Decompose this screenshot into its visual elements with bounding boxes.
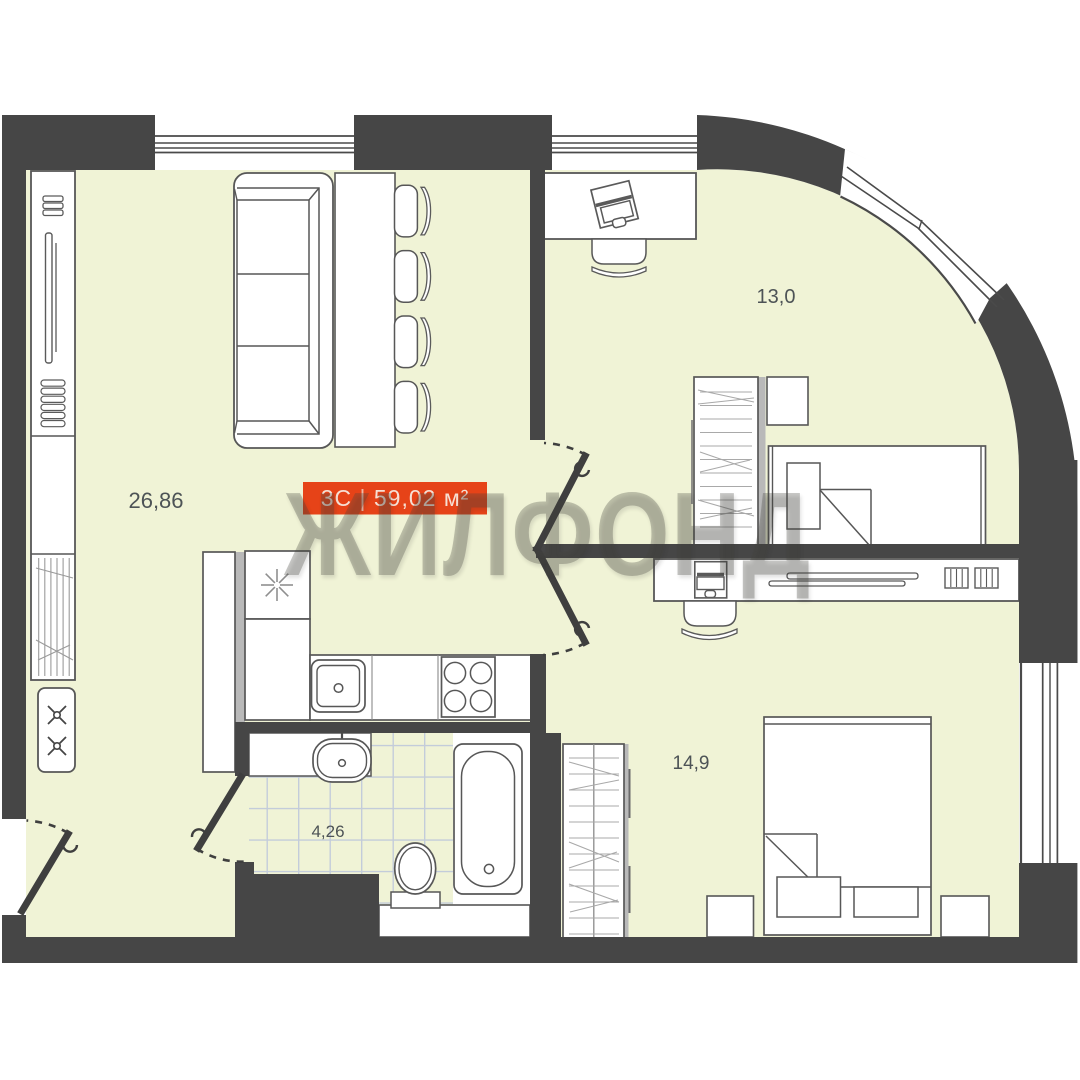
svg-text:13,0: 13,0 xyxy=(757,286,796,308)
svg-text:14,9: 14,9 xyxy=(673,753,710,774)
svg-text:4,26: 4,26 xyxy=(311,822,344,841)
